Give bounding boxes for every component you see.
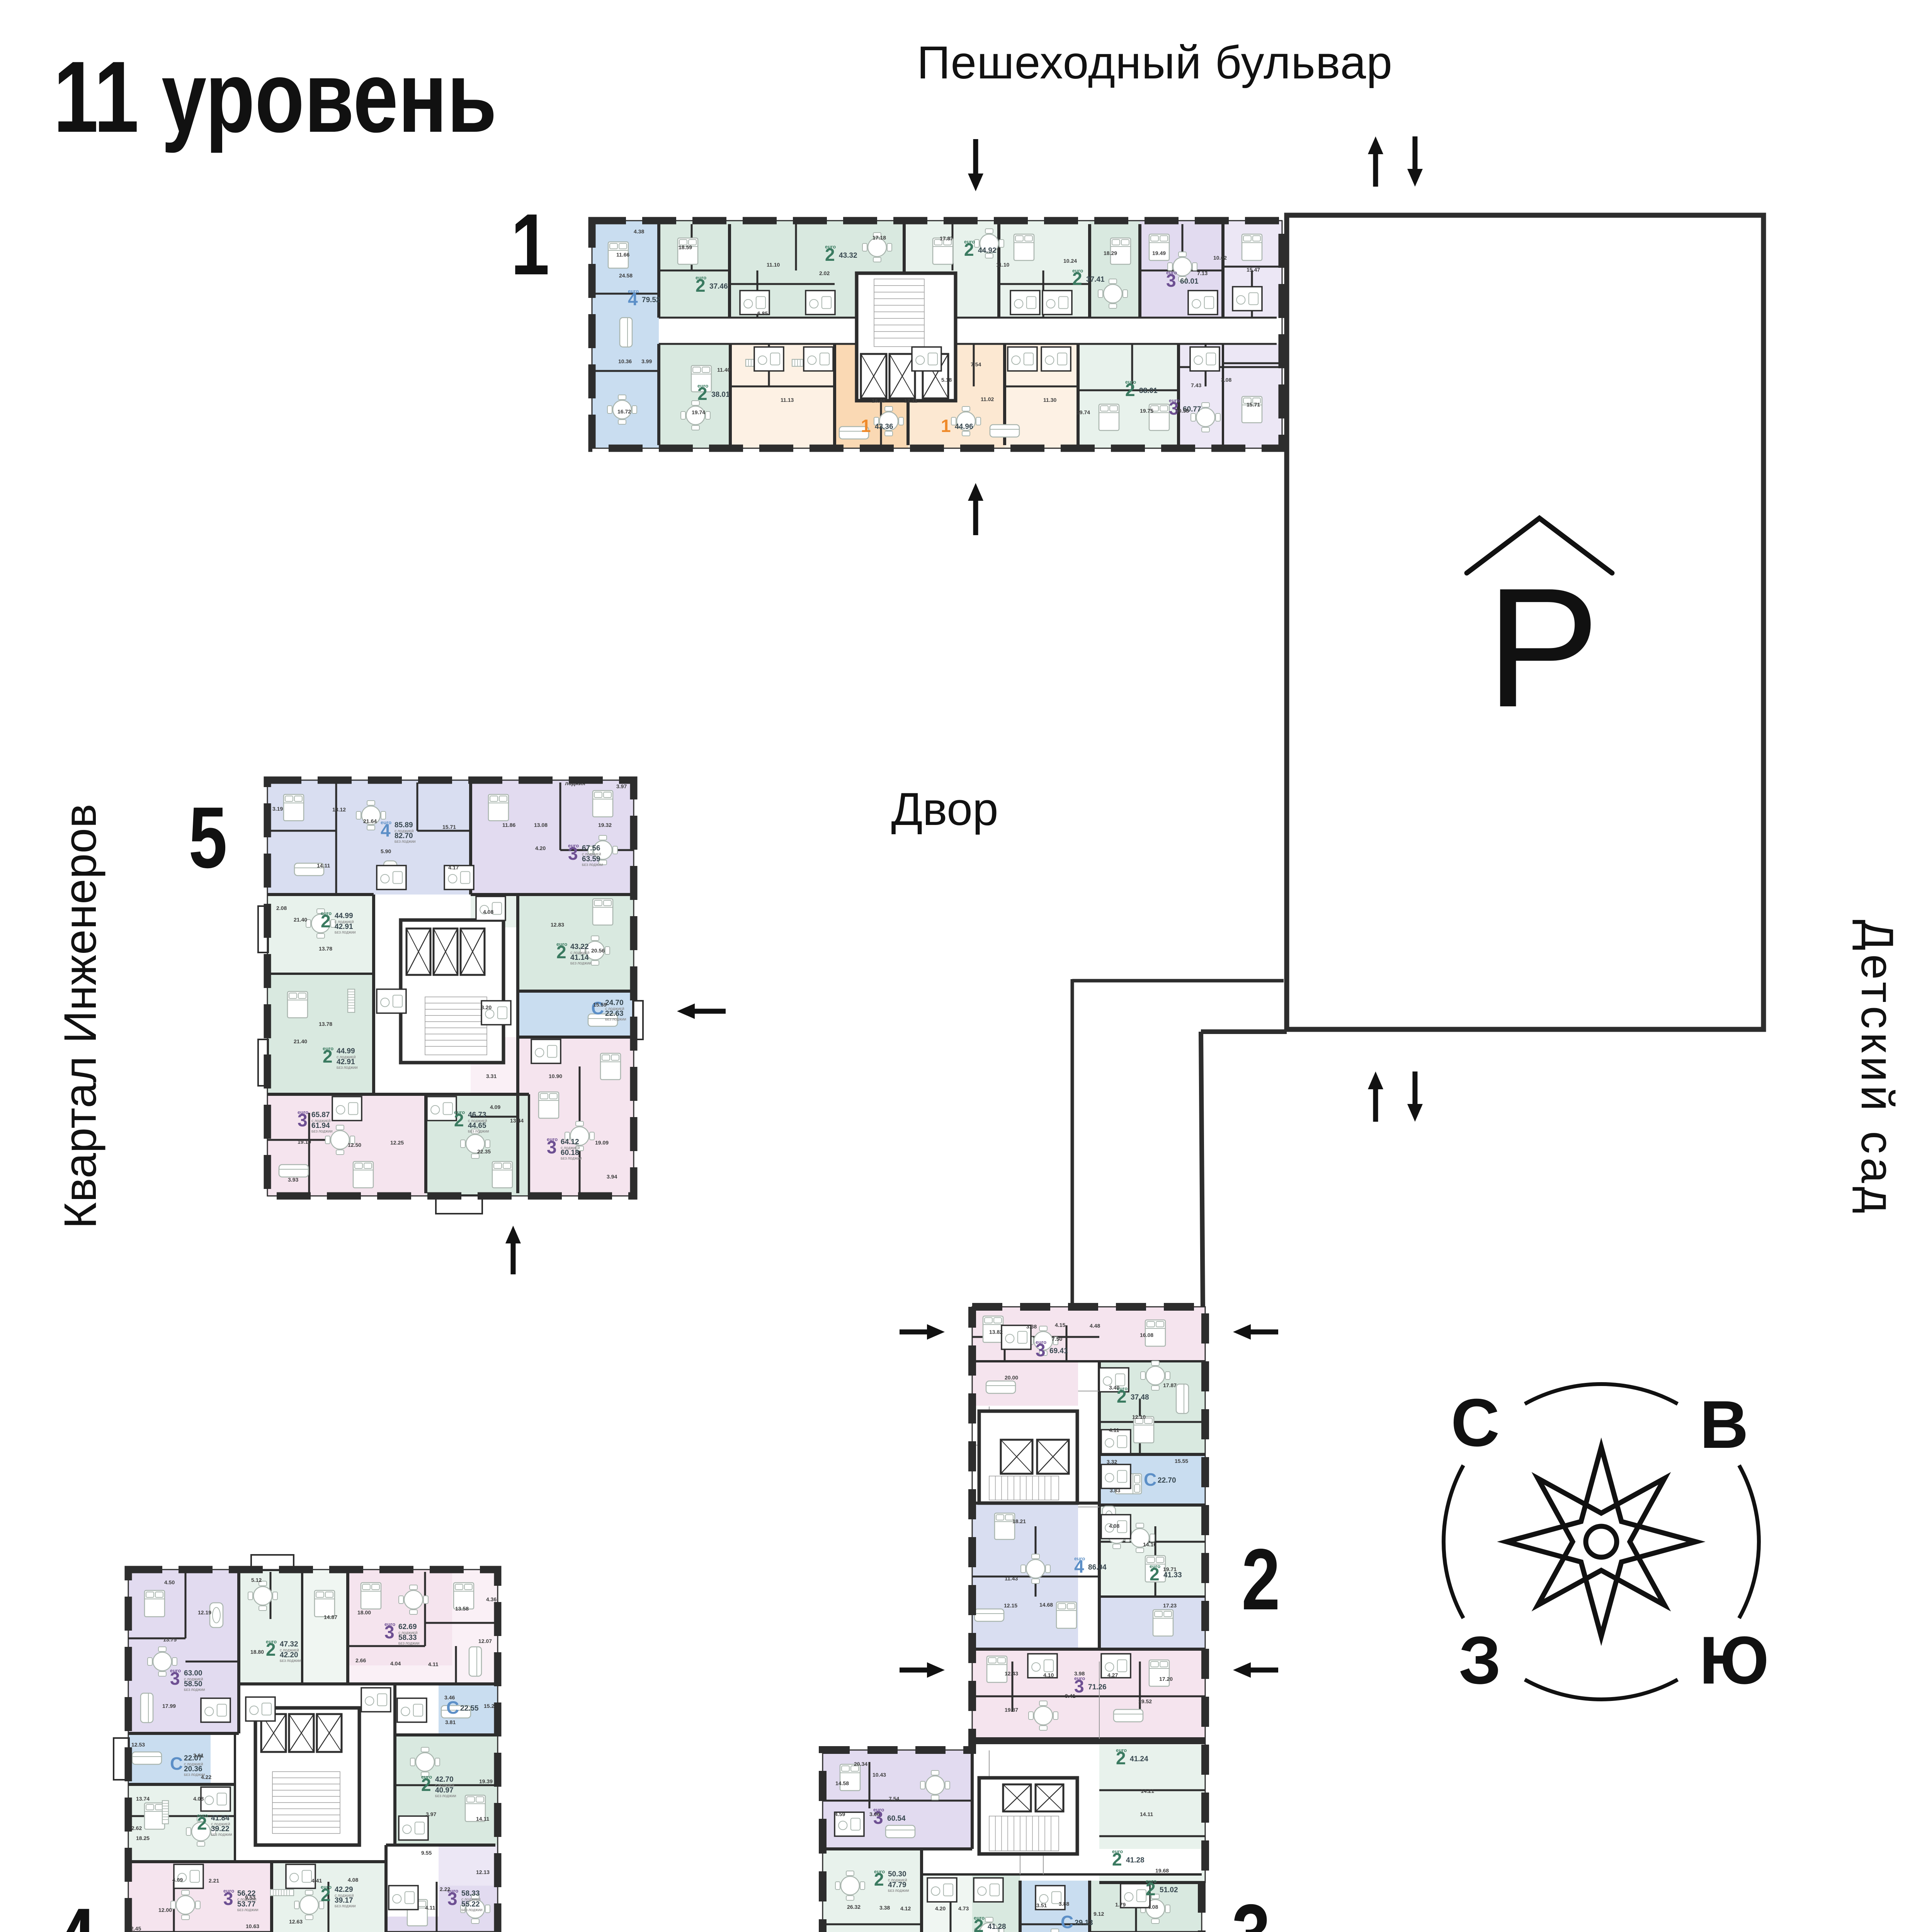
svg-text:4.41: 4.41: [311, 1878, 322, 1884]
svg-text:БЕЗ ЛОДЖИИ: БЕЗ ЛОДЖИИ: [335, 931, 356, 934]
svg-text:39.22: 39.22: [211, 1825, 230, 1833]
svg-text:3: 3: [384, 1622, 395, 1642]
svg-text:2: 2: [1072, 269, 1082, 289]
svg-text:4.08: 4.08: [483, 909, 493, 915]
svg-text:14.58: 14.58: [835, 1780, 849, 1786]
svg-text:41.24: 41.24: [1130, 1755, 1148, 1763]
svg-text:5.18: 5.18: [941, 377, 952, 383]
svg-text:2: 2: [323, 1046, 333, 1066]
svg-text:Двор: Двор: [891, 783, 998, 835]
svg-text:13.78: 13.78: [319, 1021, 332, 1027]
svg-text:15.59: 15.59: [593, 1002, 607, 1008]
svg-text:62.69: 62.69: [398, 1623, 417, 1631]
svg-text:43.22: 43.22: [570, 943, 589, 951]
svg-text:4: 4: [1074, 1556, 1084, 1577]
svg-text:50.30: 50.30: [888, 1870, 906, 1878]
svg-text:41.84: 41.84: [211, 1814, 230, 1822]
svg-text:3: 3: [1166, 270, 1176, 291]
svg-text:1.79: 1.79: [1115, 1901, 1126, 1908]
svg-text:С: С: [1144, 1469, 1156, 1490]
svg-text:7.13: 7.13: [1197, 270, 1207, 276]
svg-text:14.11: 14.11: [1140, 1811, 1153, 1817]
svg-text:3.38: 3.38: [1026, 1323, 1037, 1330]
svg-text:2: 2: [556, 942, 566, 962]
svg-text:22.35: 22.35: [477, 1148, 491, 1155]
svg-text:13.44: 13.44: [510, 1117, 524, 1124]
svg-text:17.20: 17.20: [1159, 1676, 1173, 1682]
svg-text:2.66: 2.66: [355, 1657, 366, 1663]
svg-text:38.01: 38.01: [1139, 387, 1158, 395]
svg-text:42.29: 42.29: [335, 1886, 353, 1894]
svg-text:БЕЗ ЛОДЖИИ: БЕЗ ЛОДЖИИ: [184, 1688, 205, 1692]
svg-text:16.72: 16.72: [617, 408, 631, 415]
svg-text:БЕЗ ЛОДЖИИ: БЕЗ ЛОДЖИИ: [311, 1130, 333, 1133]
svg-text:10.90: 10.90: [549, 1073, 562, 1079]
svg-text:82.70: 82.70: [395, 832, 413, 840]
svg-text:42.20: 42.20: [280, 1651, 298, 1659]
svg-text:Ю: Ю: [1699, 1623, 1769, 1698]
svg-text:4.27: 4.27: [1107, 1672, 1118, 1678]
svg-text:2.62: 2.62: [131, 1825, 142, 1831]
svg-text:21.40: 21.40: [294, 1038, 307, 1044]
svg-text:10.62: 10.62: [1213, 255, 1227, 261]
svg-text:44.65: 44.65: [468, 1122, 486, 1130]
svg-text:18.25: 18.25: [136, 1835, 150, 1841]
svg-text:2: 2: [454, 1110, 464, 1130]
svg-text:14.21: 14.21: [1141, 1788, 1154, 1794]
svg-text:С: С: [1061, 1912, 1073, 1932]
svg-text:2: 2: [974, 1916, 984, 1932]
svg-text:61.94: 61.94: [311, 1122, 330, 1130]
svg-text:67.56: 67.56: [582, 844, 600, 852]
svg-text:19.49: 19.49: [1152, 250, 1166, 256]
svg-text:3.98: 3.98: [1074, 1670, 1085, 1677]
svg-text:4.59: 4.59: [835, 1811, 845, 1817]
svg-text:Квартал Инженеров: Квартал Инженеров: [55, 804, 106, 1229]
svg-text:11.10: 11.10: [996, 262, 1009, 268]
svg-text:15.71: 15.71: [442, 824, 456, 830]
svg-text:41.28: 41.28: [988, 1923, 1006, 1931]
svg-text:С: С: [591, 998, 604, 1018]
svg-text:20.00: 20.00: [1005, 1374, 1018, 1381]
svg-text:12.00: 12.00: [158, 1907, 172, 1913]
svg-text:БЕЗ ЛОДЖИИ: БЕЗ ЛОДЖИИ: [888, 1889, 909, 1893]
svg-text:3.97: 3.97: [616, 783, 627, 789]
svg-text:3.94: 3.94: [607, 1173, 617, 1180]
svg-text:Детский сад: Детский сад: [1852, 920, 1903, 1213]
svg-text:4.17: 4.17: [448, 864, 459, 871]
svg-text:3.51: 3.51: [1036, 1902, 1047, 1908]
svg-text:55.22: 55.22: [461, 1900, 480, 1908]
svg-text:9.12: 9.12: [1094, 1911, 1104, 1917]
svg-text:58.33: 58.33: [398, 1634, 417, 1642]
svg-text:51.02: 51.02: [1160, 1886, 1178, 1894]
svg-text:9.53: 9.53: [245, 1895, 255, 1901]
svg-text:38.01: 38.01: [711, 391, 730, 399]
svg-text:14.11: 14.11: [317, 862, 330, 869]
svg-text:4.04: 4.04: [390, 1660, 401, 1667]
svg-text:4.08: 4.08: [1148, 1904, 1158, 1910]
svg-text:24.58: 24.58: [619, 272, 633, 279]
svg-text:3.06: 3.06: [869, 1811, 880, 1817]
svg-text:13.74: 13.74: [136, 1796, 150, 1802]
svg-text:19.39: 19.39: [479, 1778, 493, 1784]
svg-text:2.08: 2.08: [276, 905, 287, 911]
svg-text:17.87: 17.87: [1163, 1382, 1177, 1388]
svg-text:79.52: 79.52: [642, 296, 660, 304]
svg-text:60.54: 60.54: [887, 1815, 906, 1823]
svg-text:13.08: 13.08: [534, 822, 548, 828]
svg-text:12.15: 12.15: [1004, 1602, 1017, 1609]
svg-text:17.11: 17.11: [904, 398, 917, 404]
svg-text:20.34: 20.34: [854, 1761, 867, 1767]
svg-text:1: 1: [941, 416, 951, 436]
svg-text:86.04: 86.04: [1088, 1563, 1107, 1571]
svg-text:БЕЗ ЛОДЖИИ: БЕЗ ЛОДЖИИ: [468, 1130, 489, 1133]
svg-text:4.08: 4.08: [1109, 1523, 1119, 1529]
svg-text:9.41: 9.41: [1065, 1693, 1075, 1699]
svg-text:26.32: 26.32: [847, 1904, 861, 1910]
svg-text:11.66: 11.66: [616, 252, 629, 258]
svg-text:24.70: 24.70: [605, 999, 624, 1007]
svg-text:4.15: 4.15: [1055, 1322, 1065, 1328]
svg-text:БЕЗ ЛОДЖИИ: БЕЗ ЛОДЖИИ: [582, 863, 603, 867]
svg-text:44.96: 44.96: [955, 423, 973, 431]
svg-text:58.33: 58.33: [461, 1889, 480, 1898]
svg-text:4.12: 4.12: [900, 1905, 911, 1912]
svg-text:41.14: 41.14: [570, 954, 589, 962]
svg-text:22.70: 22.70: [1158, 1476, 1176, 1485]
svg-text:19.71: 19.71: [1163, 1566, 1177, 1572]
svg-text:2: 2: [1116, 1748, 1126, 1768]
svg-text:11.40: 11.40: [717, 367, 730, 373]
svg-text:4.10: 4.10: [1043, 1672, 1054, 1678]
svg-text:10.63: 10.63: [246, 1923, 259, 1929]
svg-text:12.13: 12.13: [476, 1869, 490, 1875]
svg-text:2: 2: [321, 911, 331, 931]
svg-text:3: 3: [1232, 1887, 1270, 1932]
svg-text:19.32: 19.32: [598, 822, 612, 828]
svg-text:2: 2: [1150, 1564, 1160, 1584]
svg-text:40.97: 40.97: [435, 1786, 454, 1794]
svg-text:3.83: 3.83: [1110, 1487, 1120, 1493]
svg-text:37.41: 37.41: [1086, 276, 1105, 284]
svg-text:2: 2: [697, 384, 707, 404]
svg-text:19.68: 19.68: [1155, 1867, 1169, 1874]
svg-text:4: 4: [381, 820, 391, 840]
svg-text:Р: Р: [1486, 553, 1599, 743]
svg-text:3: 3: [1074, 1676, 1084, 1696]
svg-text:11.30: 11.30: [1043, 397, 1056, 403]
svg-text:13.58: 13.58: [455, 1605, 469, 1612]
svg-text:63.59: 63.59: [582, 855, 600, 863]
svg-text:4.73: 4.73: [958, 1905, 969, 1912]
svg-text:71.26: 71.26: [1088, 1683, 1107, 1691]
svg-text:БЕЗ ЛОДЖИИ: БЕЗ ЛОДЖИИ: [211, 1833, 232, 1837]
svg-text:4.38: 4.38: [634, 228, 644, 235]
svg-text:С: С: [1451, 1385, 1500, 1461]
svg-text:БЕЗ ЛОДЖИИ: БЕЗ ЛОДЖИИ: [237, 1908, 259, 1912]
svg-text:4.09: 4.09: [490, 1104, 500, 1110]
svg-text:47.32: 47.32: [280, 1640, 298, 1648]
svg-text:3.32: 3.32: [1107, 1459, 1117, 1465]
svg-text:12.43: 12.43: [1005, 1670, 1018, 1677]
svg-text:46.73: 46.73: [468, 1111, 486, 1119]
svg-text:10.24: 10.24: [1063, 258, 1077, 264]
svg-text:3: 3: [223, 1889, 233, 1909]
svg-text:2.45: 2.45: [131, 1925, 141, 1932]
svg-text:2.21: 2.21: [209, 1878, 219, 1884]
svg-text:58.50: 58.50: [184, 1680, 202, 1688]
svg-text:2: 2: [825, 245, 835, 265]
svg-text:44.99: 44.99: [337, 1047, 355, 1055]
svg-text:12.10: 12.10: [1132, 1414, 1146, 1420]
svg-text:3.38: 3.38: [879, 1905, 890, 1911]
svg-text:4.20: 4.20: [935, 1905, 946, 1912]
svg-text:19.87: 19.87: [1005, 1707, 1018, 1713]
svg-text:10.58: 10.58: [1175, 408, 1189, 414]
svg-text:2.02: 2.02: [819, 270, 830, 276]
svg-text:69.41: 69.41: [1049, 1347, 1068, 1355]
svg-text:19.74: 19.74: [1077, 409, 1090, 415]
svg-text:С: С: [170, 1753, 183, 1774]
svg-text:13.82: 13.82: [989, 1329, 1003, 1335]
svg-text:41.28: 41.28: [1126, 1856, 1145, 1864]
svg-text:3.08: 3.08: [1221, 377, 1231, 383]
svg-text:18.80: 18.80: [250, 1649, 264, 1655]
svg-text:13.78: 13.78: [319, 946, 332, 952]
svg-text:5.12: 5.12: [251, 1577, 262, 1583]
svg-text:4.11: 4.11: [1109, 1427, 1119, 1433]
svg-text:1: 1: [861, 416, 871, 436]
svg-text:53.77: 53.77: [237, 1900, 256, 1908]
svg-text:4.11: 4.11: [425, 1905, 435, 1911]
svg-text:12.19: 12.19: [198, 1609, 211, 1616]
svg-text:3: 3: [568, 844, 578, 864]
svg-text:17.99: 17.99: [162, 1703, 176, 1709]
svg-text:13.12: 13.12: [332, 806, 346, 813]
svg-text:3.88: 3.88: [1059, 1901, 1069, 1907]
svg-text:4.09: 4.09: [172, 1877, 183, 1883]
svg-text:14.10: 14.10: [1143, 1541, 1156, 1548]
svg-text:2: 2: [696, 276, 706, 296]
svg-text:БЕЗ ЛОДЖИИ: БЕЗ ЛОДЖИИ: [398, 1642, 420, 1645]
svg-text:5: 5: [189, 789, 227, 886]
svg-text:60.01: 60.01: [1180, 277, 1199, 286]
svg-text:21.40: 21.40: [294, 917, 307, 923]
svg-text:18.21: 18.21: [1012, 1518, 1026, 1524]
svg-text:12.53: 12.53: [131, 1742, 145, 1748]
svg-text:2: 2: [1112, 1849, 1122, 1869]
svg-text:БЕЗ ЛОДЖИИ: БЕЗ ЛОДЖИИ: [395, 840, 416, 844]
svg-text:7.54: 7.54: [971, 361, 981, 367]
svg-text:60.18: 60.18: [561, 1149, 579, 1157]
svg-text:2.22: 2.22: [440, 1886, 450, 1892]
svg-text:3: 3: [298, 1110, 308, 1130]
svg-text:3: 3: [170, 1668, 180, 1689]
svg-text:2: 2: [874, 1869, 884, 1889]
svg-text:7.50: 7.50: [1052, 1336, 1062, 1342]
svg-text:3.40: 3.40: [1109, 1384, 1119, 1391]
svg-text:11.10: 11.10: [767, 262, 780, 268]
svg-text:Пешеходный бульвар: Пешеходный бульвар: [917, 37, 1392, 88]
svg-text:БЕЗ ЛОДЖИИ: БЕЗ ЛОДЖИИ: [435, 1794, 456, 1798]
svg-text:11.13: 11.13: [781, 397, 794, 403]
svg-text:3.93: 3.93: [288, 1177, 298, 1183]
svg-text:3.81: 3.81: [445, 1719, 456, 1725]
svg-text:42.70: 42.70: [435, 1776, 454, 1784]
svg-text:44.92: 44.92: [978, 247, 997, 255]
svg-text:11.02: 11.02: [981, 396, 994, 402]
svg-text:17.23: 17.23: [1163, 1602, 1177, 1609]
svg-text:14.68: 14.68: [1039, 1602, 1053, 1608]
svg-text:11.86: 11.86: [502, 822, 515, 828]
svg-text:19.10: 19.10: [298, 1139, 311, 1145]
svg-text:БЕЗ ЛОДЖИИ: БЕЗ ЛОДЖИИ: [335, 1905, 356, 1908]
svg-text:4.08: 4.08: [348, 1877, 358, 1883]
svg-text:БЕЗ ЛОДЖИИ: БЕЗ ЛОДЖИИ: [461, 1908, 483, 1912]
svg-text:4.48: 4.48: [1090, 1323, 1100, 1329]
svg-text:14.11: 14.11: [476, 1816, 489, 1822]
svg-text:16.08: 16.08: [1140, 1332, 1153, 1338]
svg-text:1: 1: [511, 196, 549, 293]
svg-text:20.56: 20.56: [591, 947, 605, 954]
svg-text:12.50: 12.50: [348, 1142, 361, 1148]
svg-text:БЕЗ ЛОДЖИИ: БЕЗ ЛОДЖИИ: [561, 1157, 582, 1160]
svg-text:5.90: 5.90: [381, 848, 391, 854]
svg-text:4.08: 4.08: [193, 1796, 204, 1802]
svg-text:2: 2: [421, 1775, 431, 1795]
svg-text:4.11: 4.11: [428, 1661, 439, 1667]
svg-text:4.20: 4.20: [535, 845, 546, 851]
svg-text:БЕЗ ЛОДЖИИ: БЕЗ ЛОДЖИИ: [570, 962, 592, 965]
svg-text:42.91: 42.91: [335, 923, 353, 931]
svg-text:12.25: 12.25: [390, 1139, 404, 1146]
svg-text:9.55: 9.55: [421, 1850, 432, 1856]
svg-text:10.43: 10.43: [872, 1772, 886, 1778]
svg-text:15.71: 15.71: [1247, 401, 1260, 408]
svg-text:4.36: 4.36: [486, 1596, 497, 1602]
svg-text:БЕЗ ЛОДЖИИ: БЕЗ ЛОДЖИИ: [605, 1018, 626, 1021]
svg-text:3: 3: [1036, 1340, 1046, 1360]
svg-text:4.22: 4.22: [201, 1774, 211, 1780]
svg-text:29.13: 29.13: [1075, 1919, 1093, 1927]
svg-text:12.07: 12.07: [478, 1638, 492, 1644]
svg-text:47.79: 47.79: [888, 1881, 906, 1889]
svg-text:2: 2: [321, 1885, 331, 1905]
svg-text:21.64: 21.64: [363, 818, 377, 824]
svg-text:43.36: 43.36: [875, 423, 893, 431]
svg-text:3.46: 3.46: [444, 1694, 455, 1701]
svg-text:16.46: 16.46: [872, 398, 885, 404]
svg-text:13.75: 13.75: [163, 1636, 177, 1643]
svg-text:3.97: 3.97: [426, 1811, 436, 1817]
svg-text:З: З: [1459, 1623, 1501, 1698]
svg-text:2: 2: [964, 240, 974, 260]
svg-text:4.50: 4.50: [164, 1579, 175, 1585]
svg-text:2: 2: [266, 1639, 276, 1660]
svg-text:15.55: 15.55: [1175, 1458, 1188, 1464]
svg-text:3: 3: [547, 1137, 557, 1157]
svg-text:85.89: 85.89: [395, 821, 413, 829]
svg-text:43.32: 43.32: [839, 252, 857, 260]
svg-text:42.91: 42.91: [337, 1058, 355, 1066]
svg-text:7.54: 7.54: [889, 1796, 899, 1802]
svg-text:11.43: 11.43: [1005, 1575, 1018, 1582]
svg-text:4: 4: [57, 1891, 96, 1932]
svg-text:37.48: 37.48: [1131, 1393, 1149, 1401]
svg-text:В: В: [1700, 1387, 1748, 1463]
svg-text:22.55: 22.55: [460, 1704, 479, 1713]
svg-text:41.33: 41.33: [1163, 1571, 1182, 1579]
svg-text:18.00: 18.00: [357, 1609, 371, 1616]
svg-text:19.74: 19.74: [692, 409, 705, 415]
svg-text:12.63: 12.63: [289, 1918, 303, 1925]
svg-text:10.36: 10.36: [618, 358, 632, 364]
svg-text:3.31: 3.31: [486, 1073, 497, 1079]
svg-text:20.36: 20.36: [184, 1765, 202, 1773]
svg-text:3.99: 3.99: [641, 358, 652, 364]
svg-text:19.09: 19.09: [595, 1139, 609, 1146]
svg-text:12.83: 12.83: [551, 922, 564, 928]
svg-text:БЕЗ ЛОДЖИИ: БЕЗ ЛОДЖИИ: [280, 1659, 301, 1663]
svg-text:17.87: 17.87: [940, 235, 953, 241]
svg-text:2: 2: [1242, 1531, 1280, 1628]
svg-text:3.19: 3.19: [272, 806, 283, 812]
svg-text:6.85: 6.85: [757, 310, 768, 316]
svg-text:18.59: 18.59: [679, 244, 692, 250]
svg-text:64.12: 64.12: [561, 1138, 579, 1146]
svg-text:15.47: 15.47: [1247, 267, 1260, 273]
svg-text:63.00: 63.00: [184, 1669, 202, 1677]
svg-text:2: 2: [1125, 380, 1135, 400]
svg-text:17.18: 17.18: [872, 235, 886, 241]
svg-text:2: 2: [1146, 1879, 1156, 1899]
svg-text:БЕЗ ЛОДЖИИ: БЕЗ ЛОДЖИИ: [337, 1066, 358, 1070]
svg-text:11 уровень: 11 уровень: [53, 41, 497, 154]
svg-text:19.52: 19.52: [1138, 1698, 1152, 1704]
svg-text:7.43: 7.43: [1191, 382, 1201, 388]
svg-text:39.17: 39.17: [335, 1896, 353, 1905]
svg-text:2: 2: [197, 1813, 207, 1833]
svg-text:44.99: 44.99: [335, 912, 353, 920]
svg-text:3.20: 3.20: [481, 1004, 492, 1010]
svg-text:4: 4: [628, 289, 638, 309]
svg-text:3.61: 3.61: [193, 1752, 204, 1759]
svg-text:22.63: 22.63: [605, 1010, 624, 1018]
svg-text:37.46: 37.46: [709, 282, 728, 291]
svg-text:18.29: 18.29: [1104, 250, 1117, 256]
svg-text:3: 3: [873, 1808, 883, 1828]
svg-text:14.87: 14.87: [324, 1614, 337, 1620]
svg-text:19.75: 19.75: [1140, 408, 1153, 414]
svg-text:65.87: 65.87: [311, 1111, 330, 1119]
